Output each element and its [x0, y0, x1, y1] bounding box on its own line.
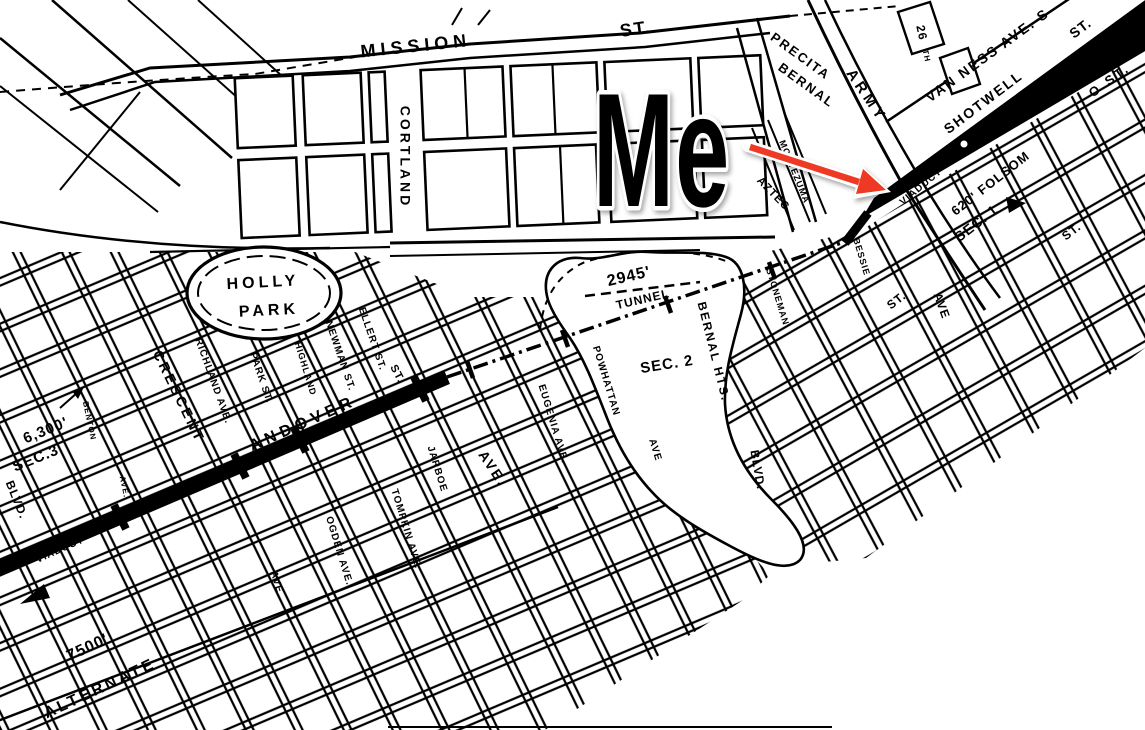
- map-label-cortland: CORTLAND: [397, 106, 413, 209]
- map-label-shotwell-st: ST.: [1066, 15, 1094, 42]
- map-label-mission: MISSION: [360, 30, 472, 61]
- me-label: Me: [593, 60, 730, 241]
- map-label-st-26-suffix: TH: [921, 49, 932, 63]
- holly-park-oval: [187, 247, 341, 339]
- viaduct-pier-dot: [961, 141, 968, 148]
- me-text: Me: [593, 60, 730, 241]
- map-label-holly-park: PARK: [239, 301, 300, 321]
- map-screenshot: MISSIONST.CORTLANDHOLLYPARKPRECITABERNAL…: [0, 0, 1145, 730]
- map-label-mission-st: ST.: [619, 17, 653, 41]
- street-map-canvas: MISSIONST.CORTLANDHOLLYPARKPRECITABERNAL…: [0, 0, 1145, 730]
